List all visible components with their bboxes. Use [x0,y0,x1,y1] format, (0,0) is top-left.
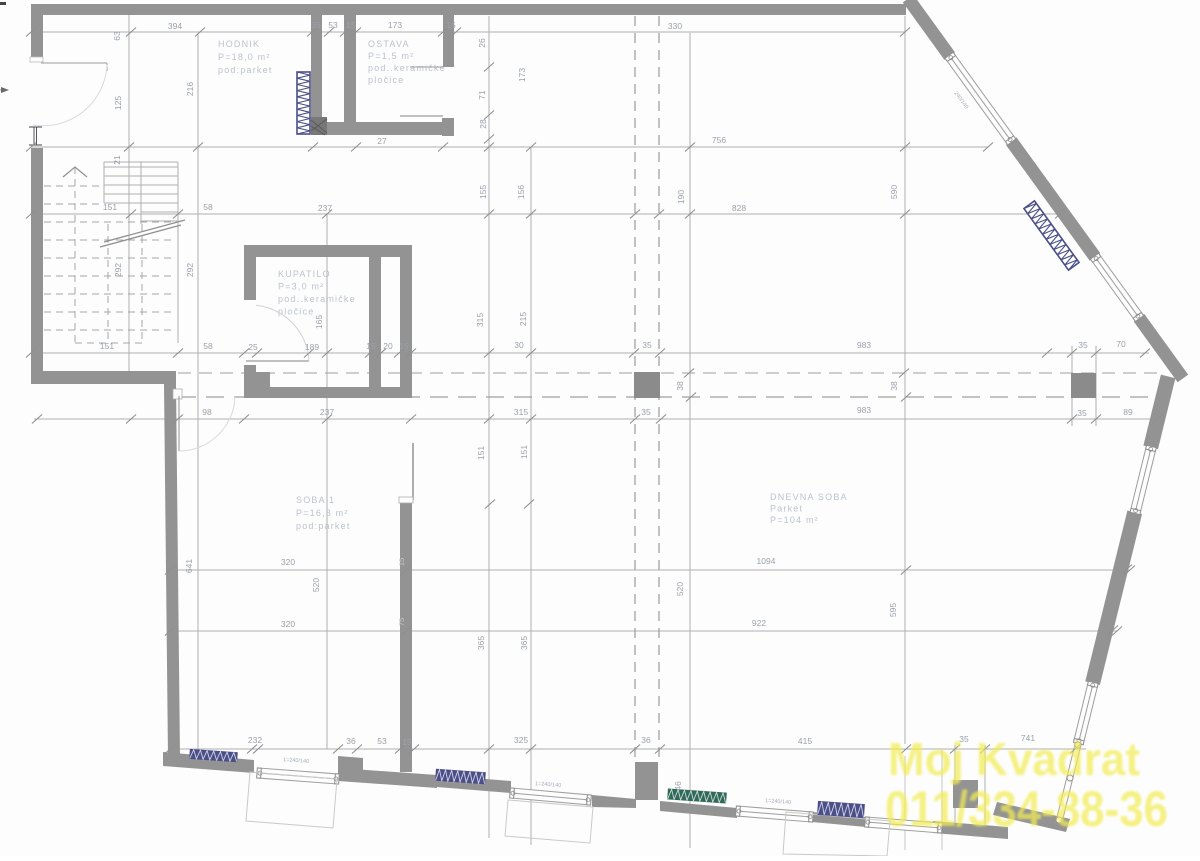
svg-text:19: 19 [402,737,412,747]
svg-text:15: 15 [446,20,456,30]
svg-text:70: 70 [1116,339,1126,349]
svg-text:pod:parket: pod:parket [218,65,273,75]
svg-text:520: 520 [311,578,321,592]
svg-text:330: 330 [668,21,682,31]
svg-text:53: 53 [377,736,387,746]
svg-text:15: 15 [397,558,406,566]
svg-text:pod:parket: pod:parket [296,521,351,531]
svg-text:DNEVNA SOBA: DNEVNA SOBA [770,492,848,502]
svg-text:315: 315 [475,313,485,327]
svg-text:151: 151 [519,445,529,459]
svg-text:21: 21 [112,155,122,165]
svg-text:365: 365 [519,636,529,650]
svg-text:1094: 1094 [757,556,776,566]
svg-text:pločice: pločice [368,75,404,85]
svg-text:237: 237 [320,407,334,417]
svg-text:151: 151 [100,341,114,351]
svg-text:35: 35 [311,20,321,30]
svg-text:P=104 m²: P=104 m² [770,515,819,525]
svg-text:173: 173 [517,68,527,82]
svg-text:25: 25 [248,342,258,352]
svg-text:156: 156 [516,185,526,199]
svg-text:P=1,5 m²: P=1,5 m² [368,51,414,61]
svg-text:155: 155 [478,185,488,199]
svg-text:151: 151 [476,446,486,460]
svg-text:38: 38 [675,381,685,391]
svg-text:590: 590 [889,185,899,199]
svg-text:641: 641 [184,559,194,573]
svg-text:216: 216 [185,82,195,96]
svg-text:pod..keramičke: pod..keramičke [368,63,446,73]
svg-text:P=3,0 m²: P=3,0 m² [278,282,324,292]
svg-text:53: 53 [328,20,338,30]
svg-text:828: 828 [732,203,746,213]
svg-text:OSTAVA: OSTAVA [368,39,410,49]
svg-text:28: 28 [478,119,488,129]
svg-text:315: 315 [514,407,528,417]
svg-text:35: 35 [1078,340,1088,350]
svg-text:173: 173 [388,20,402,30]
svg-text:SOBA 1: SOBA 1 [296,495,335,505]
svg-text:58: 58 [203,341,213,351]
svg-text:292: 292 [113,263,123,277]
svg-text:325: 325 [514,735,528,745]
svg-text:20: 20 [383,341,393,351]
svg-text:151: 151 [103,202,117,212]
svg-text:595: 595 [888,603,898,617]
svg-text:125: 125 [113,96,123,110]
svg-text:520: 520 [675,582,685,596]
svg-text:232: 232 [248,735,262,745]
svg-text:756: 756 [712,135,726,145]
svg-text:71: 71 [477,90,487,100]
svg-text:30: 30 [514,340,524,350]
svg-text:365: 365 [476,636,486,650]
svg-text:190: 190 [676,190,686,204]
svg-text:35: 35 [641,407,651,417]
svg-text:26: 26 [477,38,487,48]
svg-text:pod..keramičke: pod..keramičke [278,294,356,304]
svg-text:P=18,0 m²: P=18,0 m² [218,52,271,62]
svg-text:36: 36 [641,735,651,745]
svg-text:237: 237 [318,203,332,213]
svg-text:35: 35 [642,340,652,350]
svg-text:15: 15 [399,341,409,351]
svg-text:89: 89 [1123,407,1133,417]
svg-text:63: 63 [112,31,122,41]
svg-text:165: 165 [314,315,324,329]
svg-text:38: 38 [889,381,899,391]
svg-text:292: 292 [185,263,195,277]
svg-text:320: 320 [281,619,295,629]
svg-text:Moj Kvadrat: Moj Kvadrat [888,733,1140,785]
svg-text:58: 58 [203,202,213,212]
svg-text:75: 75 [397,618,406,626]
svg-text:415: 415 [798,736,812,746]
svg-text:36: 36 [346,736,356,746]
svg-text:394: 394 [168,21,182,31]
svg-text:15: 15 [346,20,356,30]
svg-text:46: 46 [673,781,683,791]
svg-text:983: 983 [857,405,871,415]
svg-text:27: 27 [377,136,387,146]
svg-text:35: 35 [1077,408,1087,418]
svg-text:189: 189 [305,342,319,352]
svg-text:Parket: Parket [770,504,803,514]
svg-text:215: 215 [518,312,528,326]
svg-text:HODNIK: HODNIK [218,39,260,49]
svg-text:983: 983 [857,340,871,350]
svg-text:KUPATILO: KUPATILO [278,269,331,279]
svg-text:P=16,3 m²: P=16,3 m² [296,508,349,518]
svg-text:98: 98 [202,407,212,417]
svg-text:011/334-88-36: 011/334-88-36 [885,781,1168,837]
svg-text:922: 922 [752,618,766,628]
svg-text:320: 320 [281,557,295,567]
svg-text:15: 15 [366,341,376,351]
